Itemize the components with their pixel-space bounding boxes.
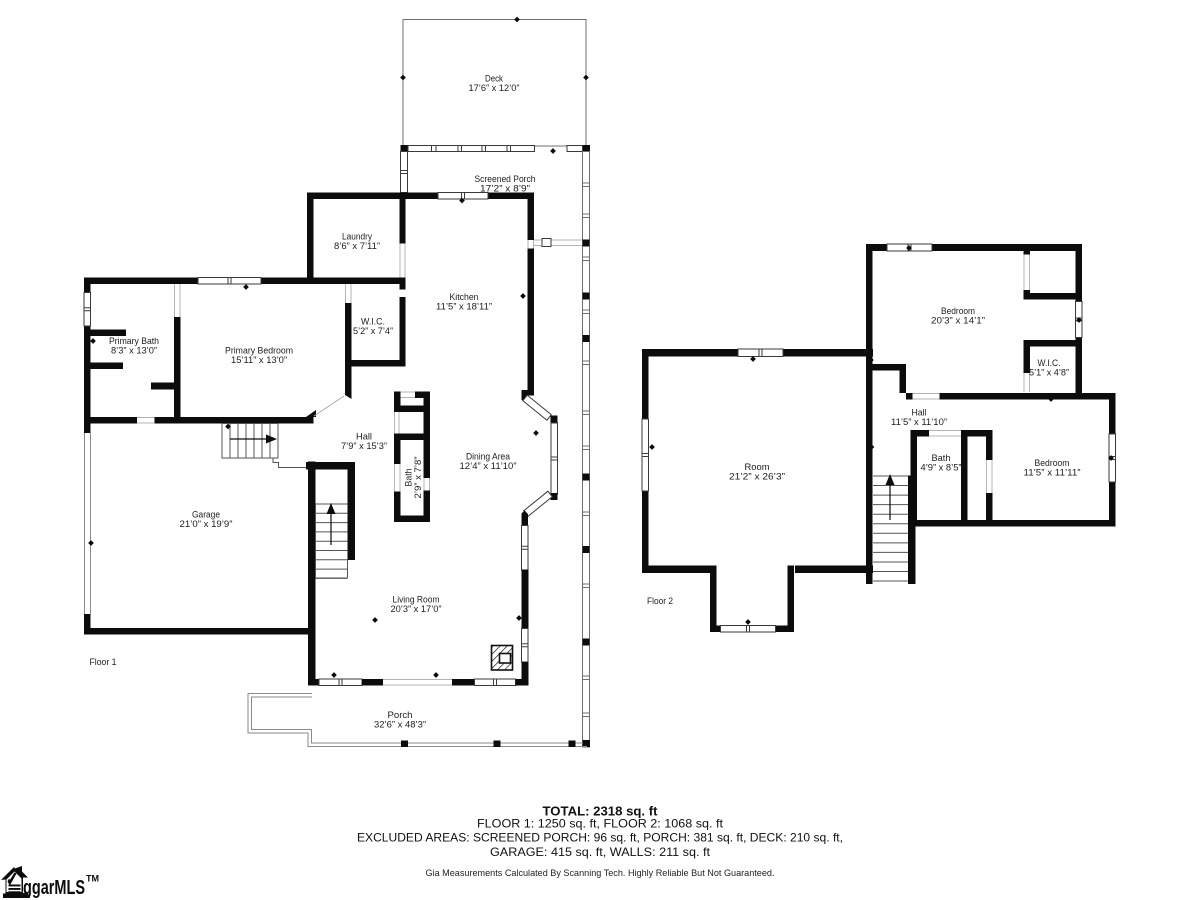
svg-text:5’1” x 4’8”: 5’1” x 4’8”: [1029, 367, 1069, 377]
svg-text:11’5” x 11’11”: 11’5” x 11’11”: [1024, 467, 1081, 477]
svg-text:8’3” x 13’0”: 8’3” x 13’0”: [111, 345, 157, 355]
svg-text:11’5” x 18’11”: 11’5” x 18’11”: [436, 301, 492, 311]
svg-text:21’2” x 26’3”: 21’2” x 26’3”: [729, 471, 785, 481]
svg-text:20’3” x 17’0”: 20’3” x 17’0”: [391, 604, 442, 614]
svg-text:7’9” x 15’3”: 7’9” x 15’3”: [341, 441, 387, 451]
svg-text:20’3” x 14’1”: 20’3” x 14’1”: [931, 315, 985, 325]
svg-text:W.I.C.: W.I.C.: [1038, 358, 1061, 368]
svg-text:17’6” x 12’0”: 17’6” x 12’0”: [469, 83, 520, 93]
svg-text:FLOOR 1: 1250 sq. ft, FLOOR 2:: FLOOR 1: 1250 sq. ft, FLOOR 2: 1068 sq. …: [477, 817, 724, 831]
svg-text:Kitchen: Kitchen: [450, 292, 479, 302]
svg-text:2’9” x 7’8”: 2’9” x 7’8”: [413, 456, 423, 498]
svg-text:TM: TM: [86, 873, 99, 883]
svg-text:Garage: Garage: [192, 509, 220, 519]
svg-text:W.I.C.: W.I.C.: [361, 316, 385, 326]
svg-text:Floor 2: Floor 2: [647, 596, 673, 606]
svg-text:Hall: Hall: [356, 431, 372, 441]
svg-text:Gia Measurements Calculated By: Gia Measurements Calculated By Scanning …: [426, 868, 775, 879]
svg-text:Bath: Bath: [403, 468, 413, 486]
svg-text:17’2” x 8’9”: 17’2” x 8’9”: [480, 183, 530, 193]
svg-text:21’0” x 19’9”: 21’0” x 19’9”: [180, 519, 233, 529]
svg-text:4’9” x 8’5”: 4’9” x 8’5”: [921, 462, 962, 472]
svg-text:8’6” x 7’11”: 8’6” x 7’11”: [334, 241, 380, 251]
svg-text:Primary Bedroom: Primary Bedroom: [225, 345, 293, 355]
svg-text:Primary Bath: Primary Bath: [109, 336, 159, 346]
svg-text:11’5” x 11’10”: 11’5” x 11’10”: [891, 417, 947, 427]
svg-text:Porch: Porch: [388, 710, 413, 720]
svg-text:EXCLUDED AREAS: SCREENED PORCH: EXCLUDED AREAS: SCREENED PORCH: 96 sq. f…: [357, 831, 843, 845]
svg-text:15’11” x 13’0”: 15’11” x 13’0”: [231, 355, 287, 365]
svg-text:Floor 1: Floor 1: [90, 657, 117, 667]
svg-text:5’2” x 7’4”: 5’2” x 7’4”: [353, 326, 393, 336]
svg-text:Dining Area: Dining Area: [466, 451, 510, 461]
svg-text:32’6” x 48’3”: 32’6” x 48’3”: [374, 719, 426, 729]
svg-text:Hall: Hall: [912, 407, 927, 417]
svg-text:12’4” x 11’10”: 12’4” x 11’10”: [460, 461, 517, 471]
svg-text:Laundry: Laundry: [342, 231, 373, 241]
svg-text:Bedroom: Bedroom: [1035, 458, 1070, 468]
svg-text:Deck: Deck: [485, 73, 504, 83]
svg-text:Bedroom: Bedroom: [941, 306, 975, 316]
svg-text:Screened Porch: Screened Porch: [475, 174, 536, 184]
svg-text:Room: Room: [745, 462, 770, 472]
svg-text:Living Room: Living Room: [393, 594, 440, 604]
svg-text:Bath: Bath: [932, 453, 951, 463]
svg-text:GARAGE: 415 sq. ft, WALLS: 211: GARAGE: 415 sq. ft, WALLS: 211 sq. ft: [490, 845, 711, 859]
svg-text:ggarMLS: ggarMLS: [23, 877, 85, 899]
